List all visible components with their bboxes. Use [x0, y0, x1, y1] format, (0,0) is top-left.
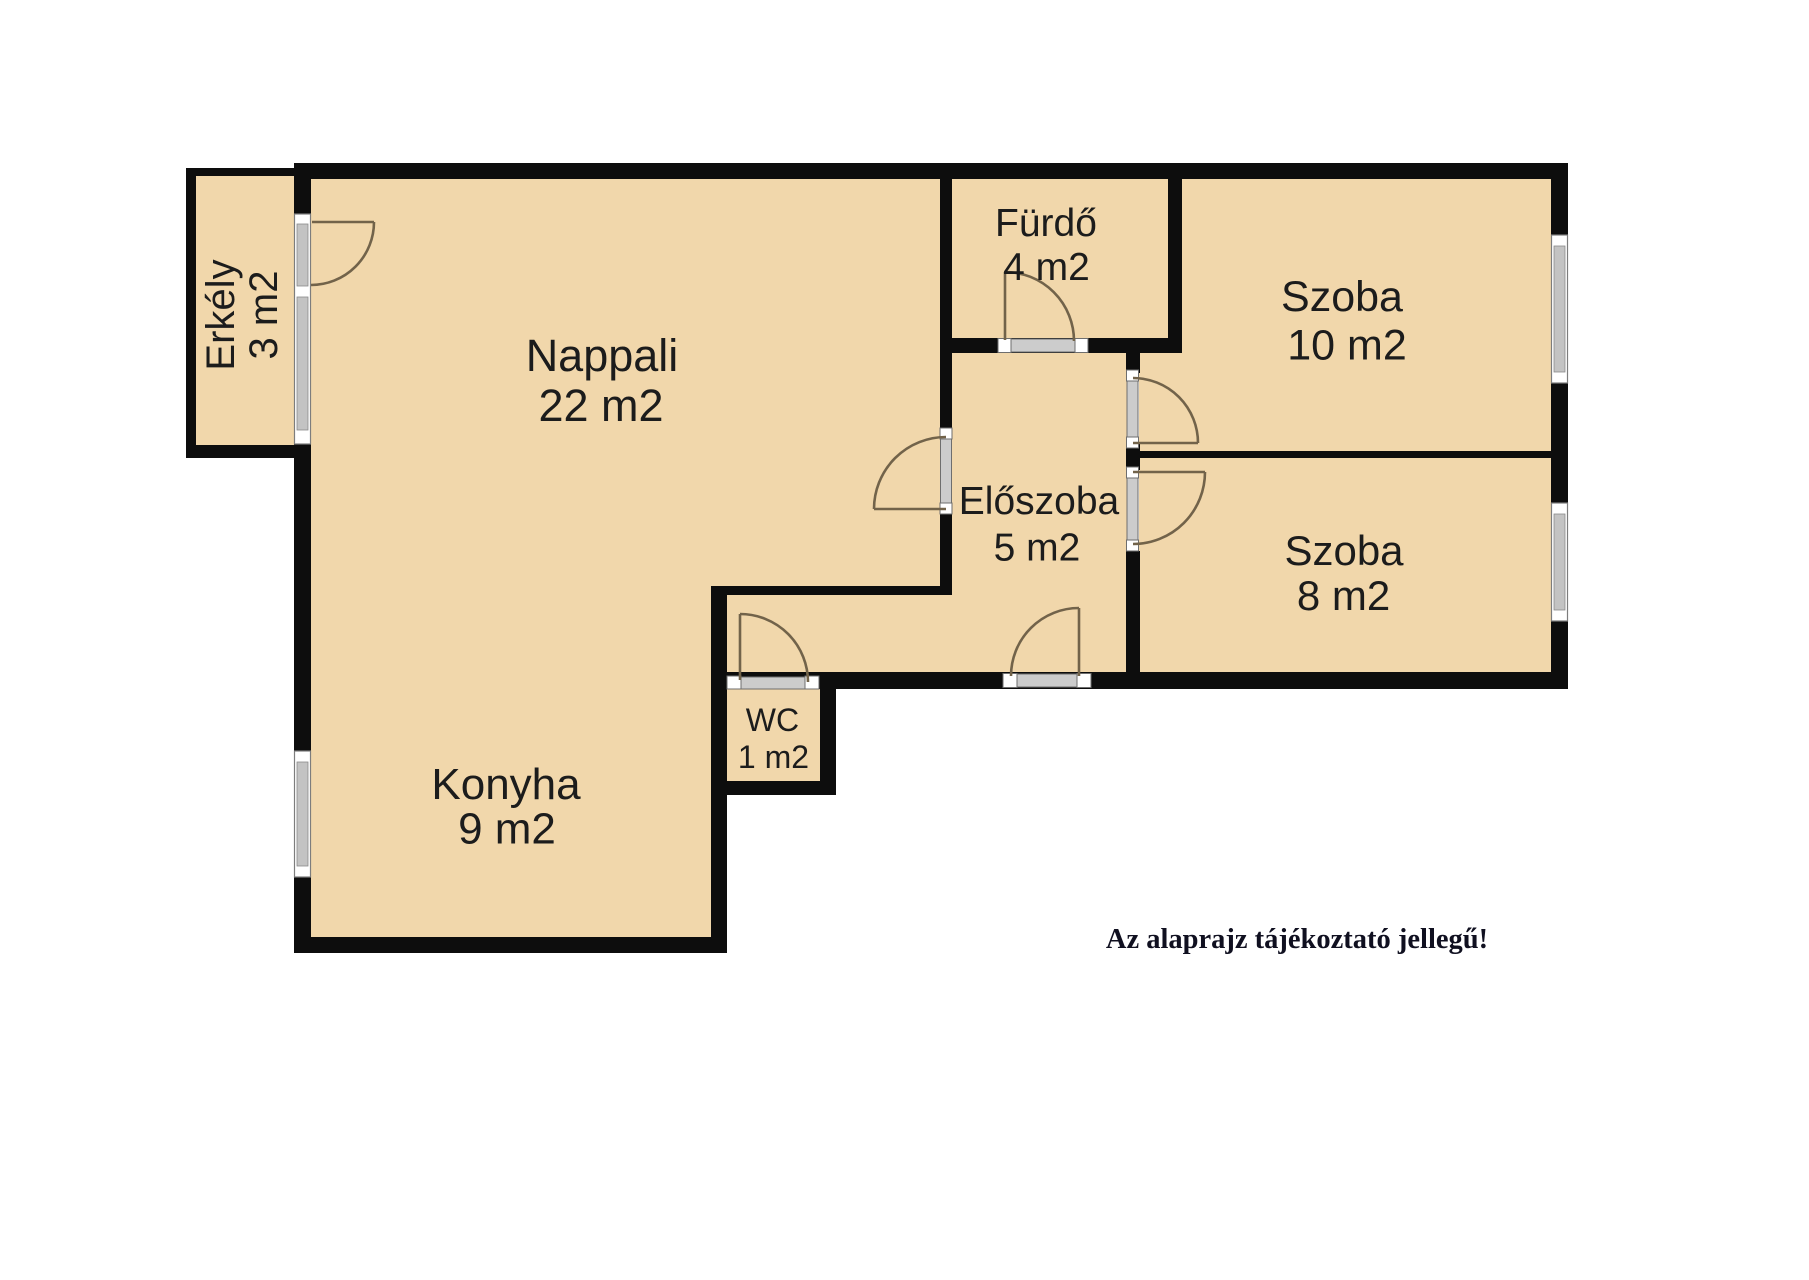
svg-text:Fürdő: Fürdő	[995, 202, 1097, 245]
svg-text:Szoba: Szoba	[1284, 527, 1404, 574]
svg-text:4 m2: 4 m2	[1003, 246, 1090, 289]
svg-text:3 m2: 3 m2	[242, 271, 286, 360]
svg-text:1 m2: 1 m2	[738, 739, 809, 775]
svg-text:5 m2: 5 m2	[994, 527, 1081, 570]
svg-text:22 m2: 22 m2	[538, 380, 663, 431]
svg-text:8 m2: 8 m2	[1297, 572, 1390, 619]
svg-text:Erkély: Erkély	[199, 259, 243, 370]
svg-text:10 m2: 10 m2	[1287, 322, 1407, 370]
svg-text:Konyha: Konyha	[431, 760, 581, 809]
svg-text:Az alaprajz tájékoztató jelleg: Az alaprajz tájékoztató jellegű!	[1106, 924, 1488, 955]
svg-text:Nappali: Nappali	[526, 330, 679, 381]
svg-text:Szoba: Szoba	[1281, 273, 1403, 321]
svg-text:WC: WC	[746, 702, 799, 738]
svg-text:Előszoba: Előszoba	[959, 480, 1120, 523]
svg-text:9 m2: 9 m2	[458, 805, 556, 854]
